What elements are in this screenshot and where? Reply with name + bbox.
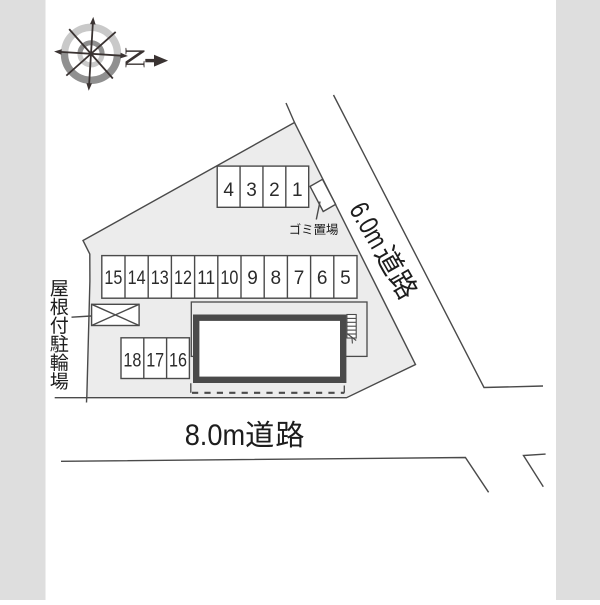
svg-text:18: 18 <box>123 351 141 372</box>
svg-text:6: 6 <box>317 268 328 289</box>
svg-text:15: 15 <box>104 268 122 289</box>
svg-text:2: 2 <box>269 180 280 201</box>
svg-text:7: 7 <box>294 268 305 289</box>
svg-text:13: 13 <box>151 268 169 289</box>
svg-text:11: 11 <box>197 268 215 289</box>
svg-text:17: 17 <box>146 351 164 372</box>
svg-text:4: 4 <box>223 180 234 201</box>
svg-text:16: 16 <box>169 351 187 372</box>
svg-text:3: 3 <box>246 180 257 201</box>
svg-text:1: 1 <box>292 180 303 201</box>
svg-text:10: 10 <box>220 268 238 289</box>
svg-text:5: 5 <box>340 268 351 289</box>
svg-text:8.0m: 8.0m <box>185 420 245 452</box>
svg-text:14: 14 <box>128 268 146 289</box>
svg-text:12: 12 <box>174 268 192 289</box>
svg-text:9: 9 <box>247 268 258 289</box>
svg-text:8: 8 <box>271 268 282 289</box>
